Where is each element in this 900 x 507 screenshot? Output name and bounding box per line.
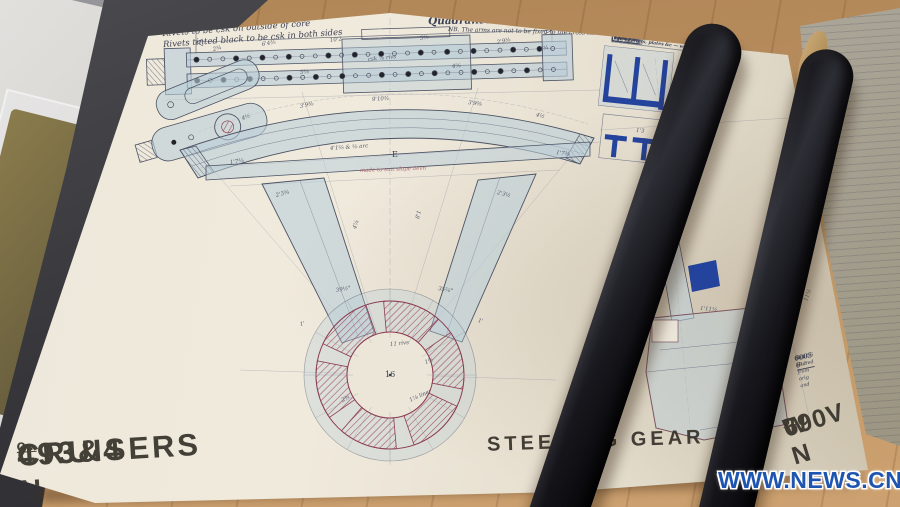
- dimension-annotation: 5⅜: [300, 69, 309, 76]
- dimension-annotation: 2¾: [341, 394, 352, 404]
- dimension-annotation: 2'3¾: [275, 189, 290, 199]
- dimension-annotation: 1'11½: [700, 306, 718, 313]
- dimension-annotation: 10'2: [330, 36, 343, 44]
- dimension-annotation: 2¾: [212, 45, 222, 53]
- dimension-annotation: 9'10¾: [372, 96, 390, 103]
- dimension-annotation: 8'1: [415, 210, 423, 220]
- news-watermark: WWW.NEWS.CN: [718, 467, 900, 494]
- dimension-annotation: 2'3½: [496, 190, 511, 199]
- dimension-annotation: 1': [477, 318, 483, 325]
- dimension-annotation: 4½: [535, 112, 545, 120]
- dimension-annotation: 4½: [241, 113, 251, 122]
- dimension-annotation: 3⅛: [419, 35, 429, 42]
- dimension-annotation: 1'3: [636, 128, 645, 135]
- dimension-annotation: 1⅞ liner: [409, 388, 433, 403]
- dimension-annotation: 2¾: [539, 45, 549, 53]
- dimension-annotation: E: [392, 150, 398, 159]
- dimension-annotation: 3'9⅜: [468, 100, 483, 108]
- dimension-annotation: made to suit slope devn: [360, 166, 426, 174]
- dimension-annotation: 2'9⅜: [496, 37, 511, 46]
- dimension-annotation: 1'7⅜: [230, 158, 245, 166]
- dimension-annotation: 1½: [424, 357, 434, 366]
- dimension-annotation: 1'7⅜: [556, 150, 571, 158]
- dimension-annotation: 1': [299, 321, 305, 328]
- hub-bore-dimension: 16: [385, 370, 395, 379]
- dimension-annotation: csk ⅞ rivs: [368, 54, 397, 63]
- dimension-annotation: 35⅝°: [437, 286, 453, 295]
- dimension-annotation: 3'9⅜: [299, 101, 314, 110]
- cruisers-number: 493&4: [16, 432, 124, 474]
- dimension-annotation: 11 rivs: [390, 340, 410, 348]
- dimension-annotation: 4⅞: [352, 220, 360, 230]
- dimension-annotation: 4⅝: [452, 63, 461, 70]
- photo-of-engineering-drawing: Rivet holes ⅞ dia abt 3 centres Rivets t…: [0, 0, 900, 507]
- dimension-annotation: 4'1⅜ & ⅝ arc: [330, 143, 369, 152]
- dimension-annotation: 39½°: [335, 285, 351, 294]
- dimension-annotation: 6'4⅜: [261, 40, 276, 48]
